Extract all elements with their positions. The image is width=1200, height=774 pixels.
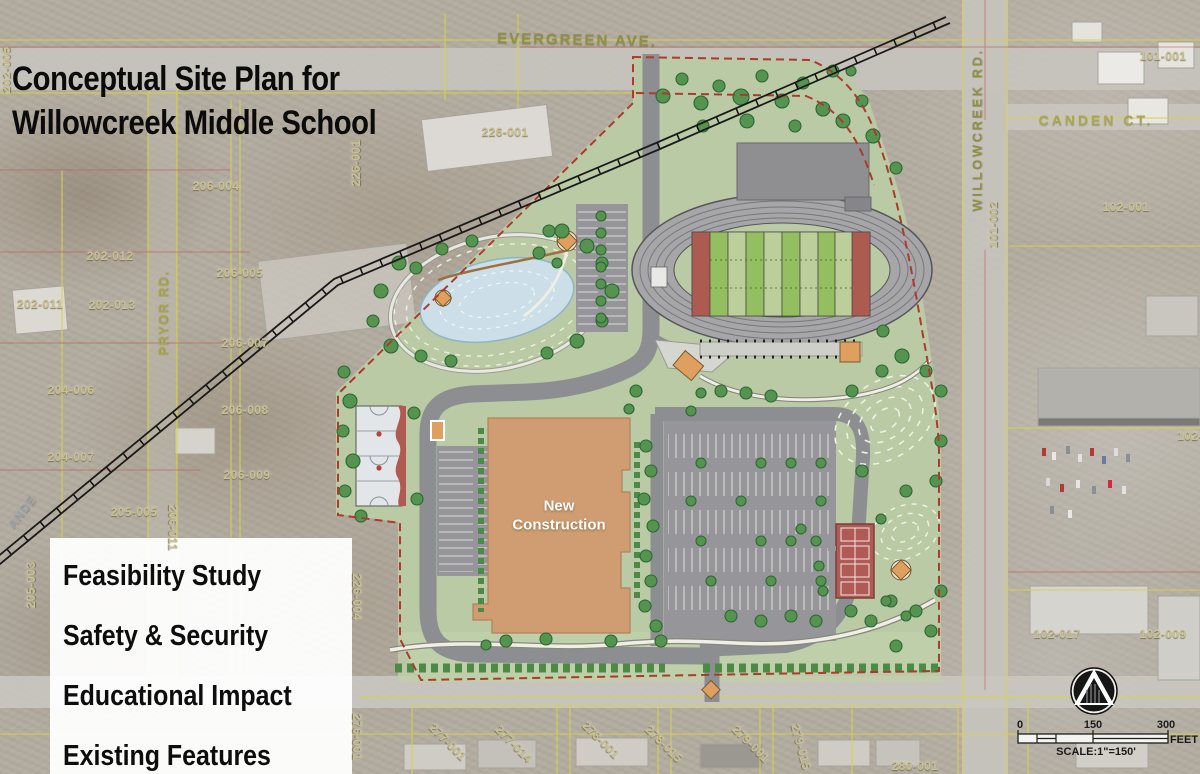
parcel-label: 102-001 xyxy=(1103,200,1150,214)
title-line-2: Willowcreek Middle School xyxy=(12,102,376,146)
scale-units: FEET xyxy=(1170,734,1198,746)
parcel-label: 102-017 xyxy=(1034,627,1081,641)
parcel-label: 226-001 xyxy=(349,140,363,187)
parcel-label: 202-005 xyxy=(0,47,13,94)
study-topic: Existing Features xyxy=(63,740,271,773)
parcel-label: 202-012 xyxy=(87,249,134,263)
scale-note: SCALE:1"=150' xyxy=(1056,746,1136,758)
street-label-canden: CANDEN CT. xyxy=(1039,112,1154,128)
parcel-label: 276-001 xyxy=(350,714,364,761)
street-label-willowcreek: WILLOWCREEK RD. xyxy=(970,48,985,211)
new-construction-label: New Construction xyxy=(509,497,609,535)
street-label-evergreen: EVERGREEN AVE. xyxy=(497,30,657,50)
parcel-label: 204-006 xyxy=(48,383,95,397)
basketball-courts xyxy=(356,406,406,506)
parcel-label: 101-002 xyxy=(986,202,1000,249)
parcel-label: 206-004 xyxy=(193,179,240,193)
parcel-label: 102-009 xyxy=(1140,627,1187,641)
parcel-label: 206-009 xyxy=(224,468,271,482)
parcel-label: 204-007 xyxy=(48,450,95,464)
scale-tick-150: 150 xyxy=(1084,719,1102,731)
street-label-pryor: PRYOR RD. xyxy=(156,270,171,355)
parcel-label: 205-003 xyxy=(24,562,38,609)
scale-tick-300: 300 xyxy=(1157,719,1175,731)
study-topic: Educational Impact xyxy=(63,680,292,713)
parcel-label: 102- xyxy=(1177,429,1200,443)
parcel-label: 205-005 xyxy=(111,505,158,519)
aerial-parked-cars xyxy=(1042,446,1130,518)
scale-bar xyxy=(1018,730,1168,743)
site-plan-image: Conceptual Site Plan for Willowcreek Mid… xyxy=(0,0,1200,774)
page-title: Conceptual Site Plan for Willowcreek Mid… xyxy=(12,58,376,145)
scale-tick-0: 0 xyxy=(1017,719,1023,731)
study-topics-box: Feasibility Study Safety & Security Educ… xyxy=(50,538,352,774)
title-line-1: Conceptual Site Plan for xyxy=(12,58,376,102)
parcel-label: 226-001 xyxy=(482,125,529,139)
parcel-label: 280-001 xyxy=(892,759,939,773)
parcel-label: 202-013 xyxy=(89,298,136,312)
parcel-label: 101-001 xyxy=(1140,49,1187,63)
north-arrow-icon xyxy=(1071,668,1117,714)
study-topic: Safety & Security xyxy=(63,620,268,653)
parcel-label: 202-011 xyxy=(17,297,63,311)
field-house xyxy=(737,143,869,200)
field-house-annex xyxy=(845,197,871,211)
parcel-label: 206-011 xyxy=(166,505,180,551)
parcel-label: 226-004 xyxy=(350,574,364,621)
parcel-label: 206-008 xyxy=(222,403,269,417)
parcel-label: 206-005 xyxy=(217,266,264,280)
study-topic: Feasibility Study xyxy=(63,560,261,593)
parcel-label: 206-007 xyxy=(222,336,269,350)
